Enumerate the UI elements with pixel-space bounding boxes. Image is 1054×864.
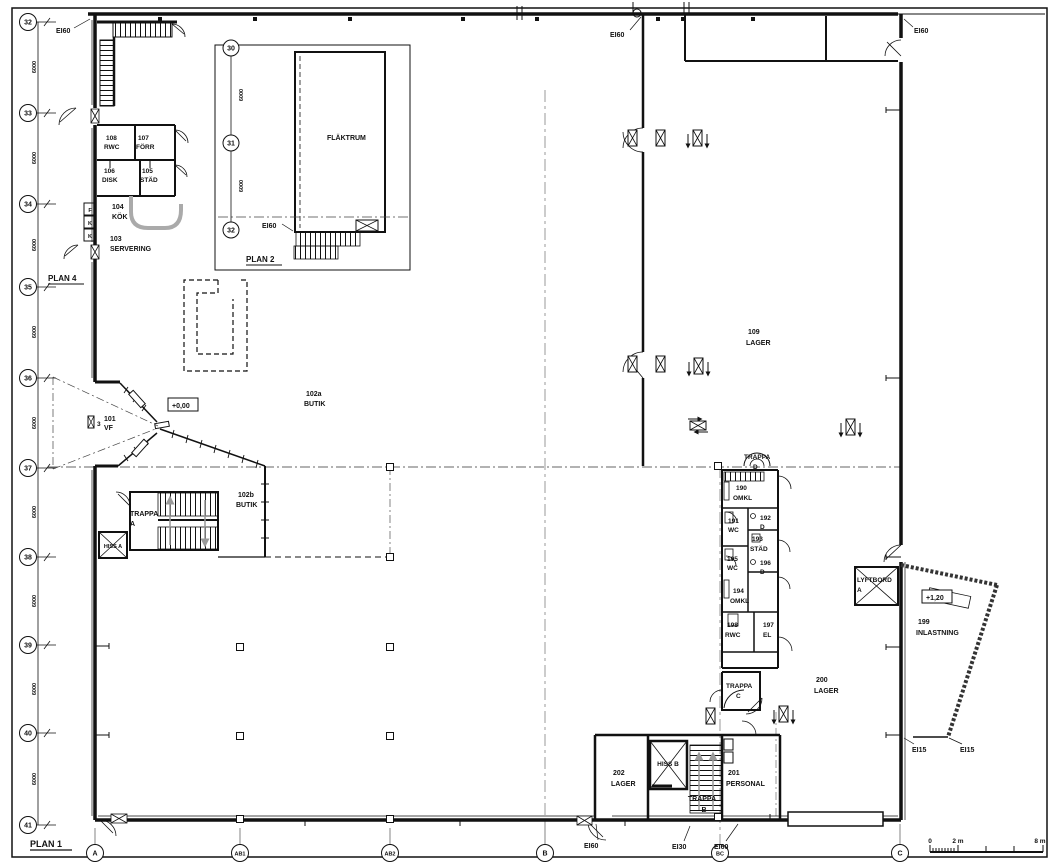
room-192-name: D (760, 524, 765, 531)
level-markers: +0,00 +1,20 (168, 398, 952, 603)
level-ground: +0,00 (172, 403, 190, 410)
room-197-name: EL (763, 632, 771, 639)
plan-titles: PLAN 1 PLAN 2 PLAN 4 (30, 255, 282, 850)
scale-zero: 0 (928, 838, 932, 845)
vent-horizontal (688, 419, 708, 432)
inset-bubble-31: 31 (227, 141, 235, 148)
room-105-num: 105 (142, 168, 153, 175)
scale-bar: 0 2 m 8 m (928, 838, 1046, 852)
room-199-num: 199 (918, 619, 930, 626)
grid-bubble-C: C (897, 851, 902, 858)
grid-bubble-36: 36 (24, 376, 32, 383)
svg-text:6000: 6000 (32, 152, 38, 164)
room-191-name: WC (728, 527, 739, 534)
trappa-b-l1: TRAPPA (688, 796, 716, 803)
svg-text:6000: 6000 (32, 595, 38, 607)
room-flaktrum-name: FLÄKTRUM (327, 134, 366, 142)
inset-bubble-30: 30 (227, 46, 235, 53)
room-194-name: OMKL (730, 598, 749, 605)
grid-bubble-39: 39 (24, 643, 32, 650)
room-108-num: 108 (106, 135, 117, 142)
room-102a-name: BUTIK (304, 401, 325, 408)
room-103-num: 103 (110, 236, 122, 243)
room-102b-name: BUTIK (236, 502, 257, 509)
inset-dim-2: 6000 (239, 180, 245, 192)
plan4-title: PLAN 4 (48, 274, 77, 283)
grid-bubble-AB1: AB1 (234, 852, 245, 858)
scale-eight: 8 m (1034, 838, 1045, 845)
grid-bubble-38: 38 (24, 555, 32, 562)
grid-bubble-BC: BC (716, 852, 724, 858)
ei30-bottom: EI30 (672, 844, 687, 851)
ei60-bottom-2: EI60 (714, 844, 729, 851)
lyftbord-l1: LYFTBORD (857, 577, 892, 584)
plan1-title: PLAN 1 (30, 839, 62, 849)
grid-bubble-37: 37 (24, 466, 32, 473)
room-193-name: STÄD (750, 545, 768, 553)
ei15-left: EI15 (912, 747, 927, 754)
room-202-num: 202 (613, 770, 625, 777)
svg-text:6000: 6000 (32, 326, 38, 338)
ei60-top-left: EI60 (56, 28, 71, 35)
shaft-k2: K (88, 234, 92, 240)
left-bay-dimensions: 6000 6000 6000 6000 6000 6000 6000 6000 … (32, 61, 38, 785)
room-103-name: SERVERING (110, 246, 152, 253)
doors (59, 24, 901, 840)
sheet-border (12, 8, 1047, 857)
svg-text:6000: 6000 (32, 506, 38, 518)
hiss-b-label: HISS B (657, 761, 679, 768)
trappa-c-l2: C (736, 693, 741, 700)
trappa-a-l2: A (130, 521, 135, 528)
lyftbord-platform (855, 567, 898, 605)
grid-bubble-AB2: AB2 (384, 852, 395, 858)
svg-text:6000: 6000 (32, 239, 38, 251)
room-102a-num: 102a (306, 391, 322, 398)
grid-bubble-B: B (542, 851, 547, 858)
room-199-name: INLASTNING (916, 630, 959, 637)
grid-bubble-34: 34 (24, 202, 32, 209)
trappa-d-l1: TRAPPA (744, 454, 771, 461)
grid-bubble-A: A (92, 851, 97, 858)
room-195-num: 195 (727, 556, 738, 563)
svg-text:6000: 6000 (32, 683, 38, 695)
level-dock: +1,20 (926, 595, 944, 602)
room-108-name: RWC (104, 144, 120, 151)
trappa-b-l2: B (701, 807, 706, 814)
room-196-num: 196 (760, 560, 771, 567)
room-106-num: 106 (104, 168, 115, 175)
trappa-c-l1: TRAPPA (726, 683, 753, 690)
grid-bottom-axis: A AB1 AB2 B BC C (87, 845, 909, 862)
room-104-num: 104 (112, 204, 124, 211)
room-191-num: 191 (728, 518, 739, 525)
shaft-labels: F K K (88, 208, 92, 240)
room-196-name: D (760, 569, 765, 576)
grid-bubble-41: 41 (24, 823, 32, 830)
room-101-name: VF (104, 425, 114, 432)
room-192-num: 192 (760, 515, 771, 522)
plan2-title: PLAN 2 (246, 255, 275, 264)
room-202-name: LAGER (611, 781, 636, 788)
svg-text:6000: 6000 (32, 61, 38, 73)
door-number-3: 3 (97, 421, 101, 428)
svg-text:6000: 6000 (32, 773, 38, 785)
grid-left-axis: 32 33 34 35 36 37 38 39 40 41 6000 6000 … (20, 14, 57, 834)
hiss-a-label: HISS A (104, 544, 122, 550)
stairs-and-lifts (97, 22, 898, 813)
grid-bubble-33: 33 (24, 111, 32, 118)
inset-dim-1: 6000 (239, 89, 245, 101)
room-107-name: FÖRR (136, 142, 155, 151)
interior-walls (84, 14, 883, 826)
trappa-a-l1: TRAPPA (130, 511, 158, 518)
ei60-top-right: EI60 (914, 28, 929, 35)
svg-text:6000: 6000 (32, 417, 38, 429)
room-194-num: 194 (733, 588, 744, 595)
top-wall-anchors (158, 17, 755, 21)
lyftbord-l2: A (857, 587, 862, 594)
exterior-walls (88, 2, 1045, 820)
room-109-name: LAGER (746, 340, 771, 347)
fire-rating-labels: EI60 EI60 EI60 EI60 EI60 EI30 EI60 EI15 … (56, 17, 975, 851)
room-107-num: 107 (138, 135, 149, 142)
room-101-num: 101 (104, 416, 116, 423)
grid-bubble-32: 32 (24, 20, 32, 27)
room-197-num: 197 (763, 622, 774, 629)
room-201-name: PERSONAL (726, 781, 766, 788)
inset-bubble-32: 32 (227, 228, 235, 235)
room-102b-num: 102b (238, 492, 254, 499)
floor-plan-drawing: 32 33 34 35 36 37 38 39 40 41 6000 6000 … (0, 0, 1054, 864)
ei15-right: EI15 (960, 747, 975, 754)
scale-two: 2 m (952, 838, 963, 845)
room-109-num: 109 (748, 329, 760, 336)
room-190-name: OMKL (733, 495, 752, 502)
room-200-num: 200 (816, 677, 828, 684)
ei60-top-center: EI60 (610, 32, 625, 39)
room-201-num: 201 (728, 770, 740, 777)
floor-plan-sheet: 32 33 34 35 36 37 38 39 40 41 6000 6000 … (0, 0, 1054, 864)
room-198-name: RWC (725, 632, 741, 639)
room-198-num: 198 (727, 622, 738, 629)
room-106-name: DISK (102, 177, 118, 184)
room-190-num: 190 (736, 485, 747, 492)
entrance-storefront (53, 280, 265, 469)
room-105-name: STÄD (140, 176, 158, 184)
grid-bubble-40: 40 (24, 731, 32, 738)
room-193-num: 193 (752, 536, 763, 543)
shaft-k1: K (88, 221, 92, 227)
grid-bubble-35: 35 (24, 285, 32, 292)
trappa-d-l2: D (753, 464, 758, 471)
room-195-name: WC (727, 565, 738, 572)
ei60-bottom-1: EI60 (584, 843, 599, 850)
room-200-name: LAGER (814, 688, 839, 695)
room-104-name: KÖK (112, 212, 128, 221)
ei60-inset: EI60 (262, 223, 277, 230)
